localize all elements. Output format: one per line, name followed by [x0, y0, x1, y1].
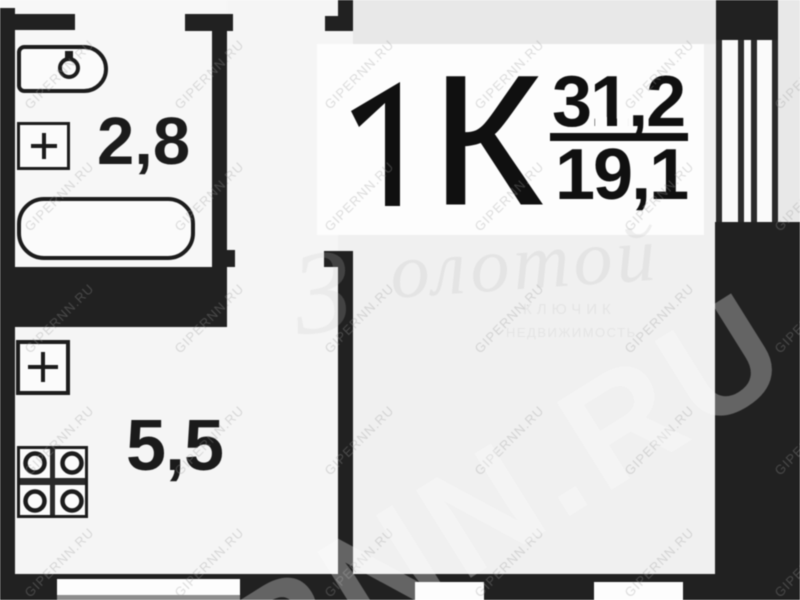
svg-text:НЕДВИЖИМОСТЬ: НЕДВИЖИМОСТЬ	[506, 325, 637, 340]
svg-text:КЛЮЧИК: КЛЮЧИК	[523, 301, 616, 318]
